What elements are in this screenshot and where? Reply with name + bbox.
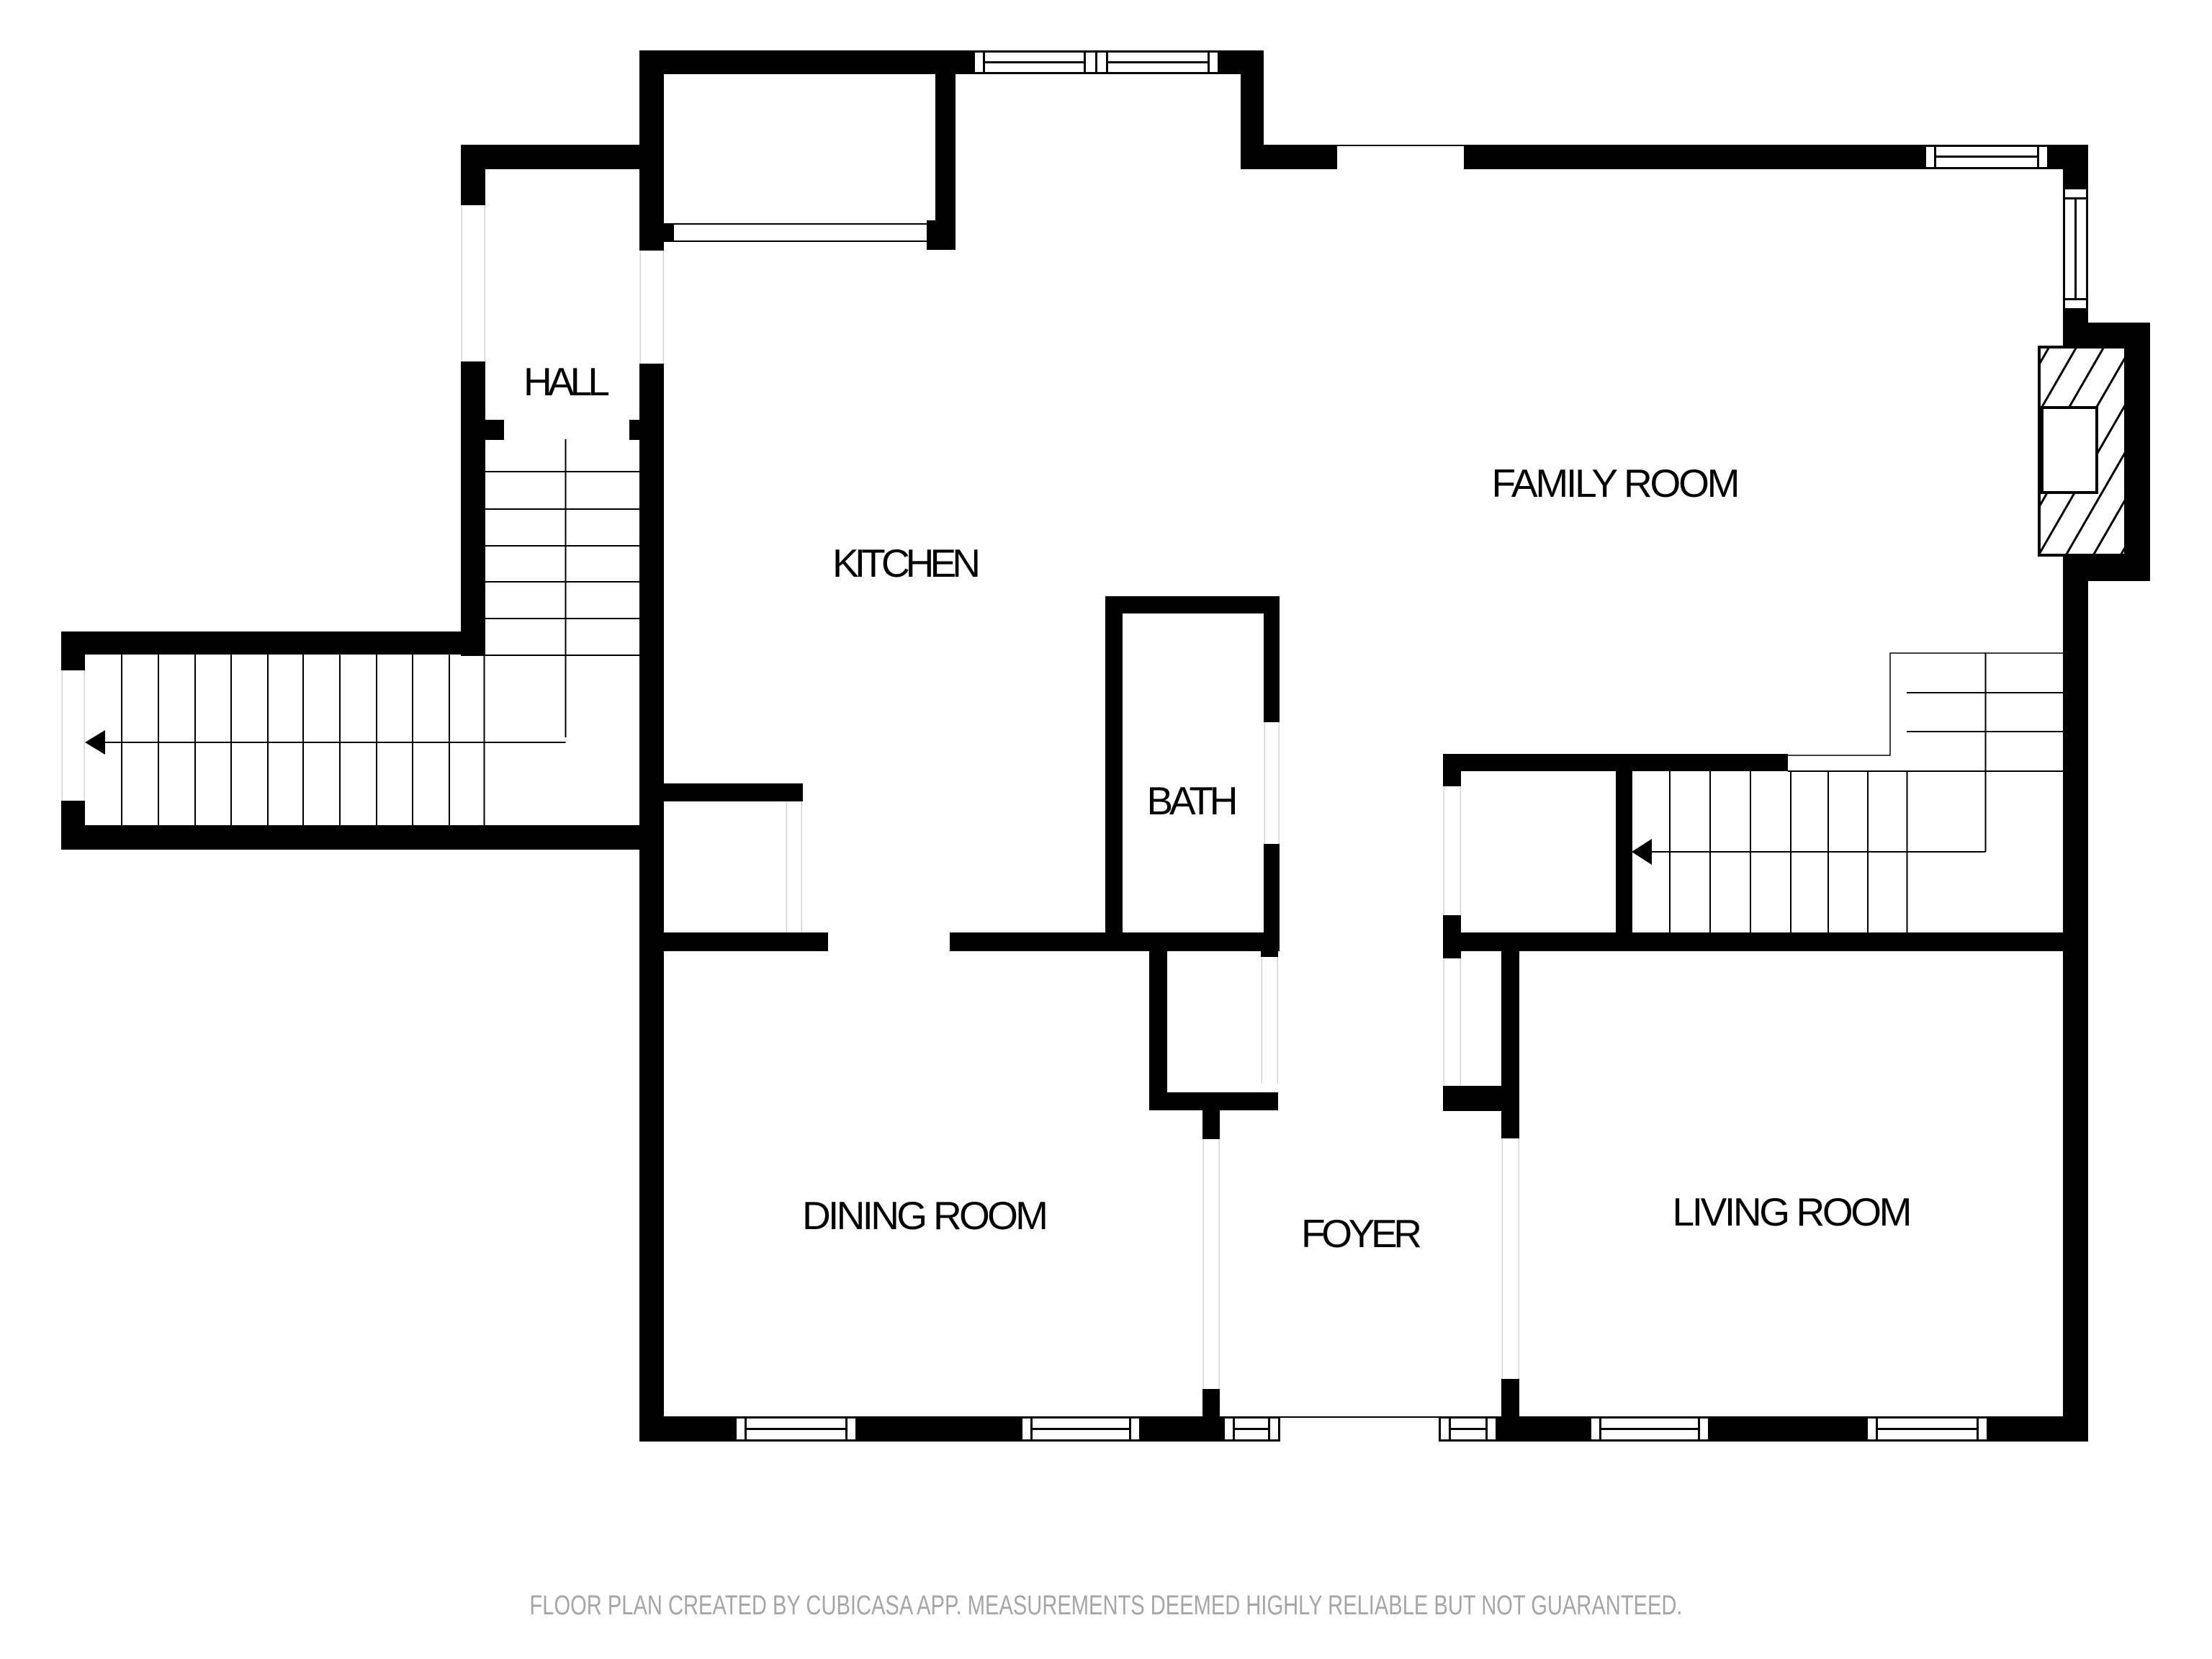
svg-text:FAMILY ROOM: FAMILY ROOM (1492, 461, 1740, 505)
svg-text:FOYER: FOYER (1301, 1211, 1422, 1256)
svg-text:HALL: HALL (523, 359, 610, 404)
svg-text:BATH: BATH (1147, 778, 1238, 823)
svg-text:KITCHEN: KITCHEN (832, 541, 981, 585)
svg-text:FLOOR PLAN CREATED BY CUBICASA: FLOOR PLAN CREATED BY CUBICASA APP. MEAS… (530, 1591, 1683, 1621)
svg-text:LIVING ROOM: LIVING ROOM (1673, 1190, 1912, 1234)
svg-text:DINING ROOM: DINING ROOM (802, 1193, 1048, 1238)
